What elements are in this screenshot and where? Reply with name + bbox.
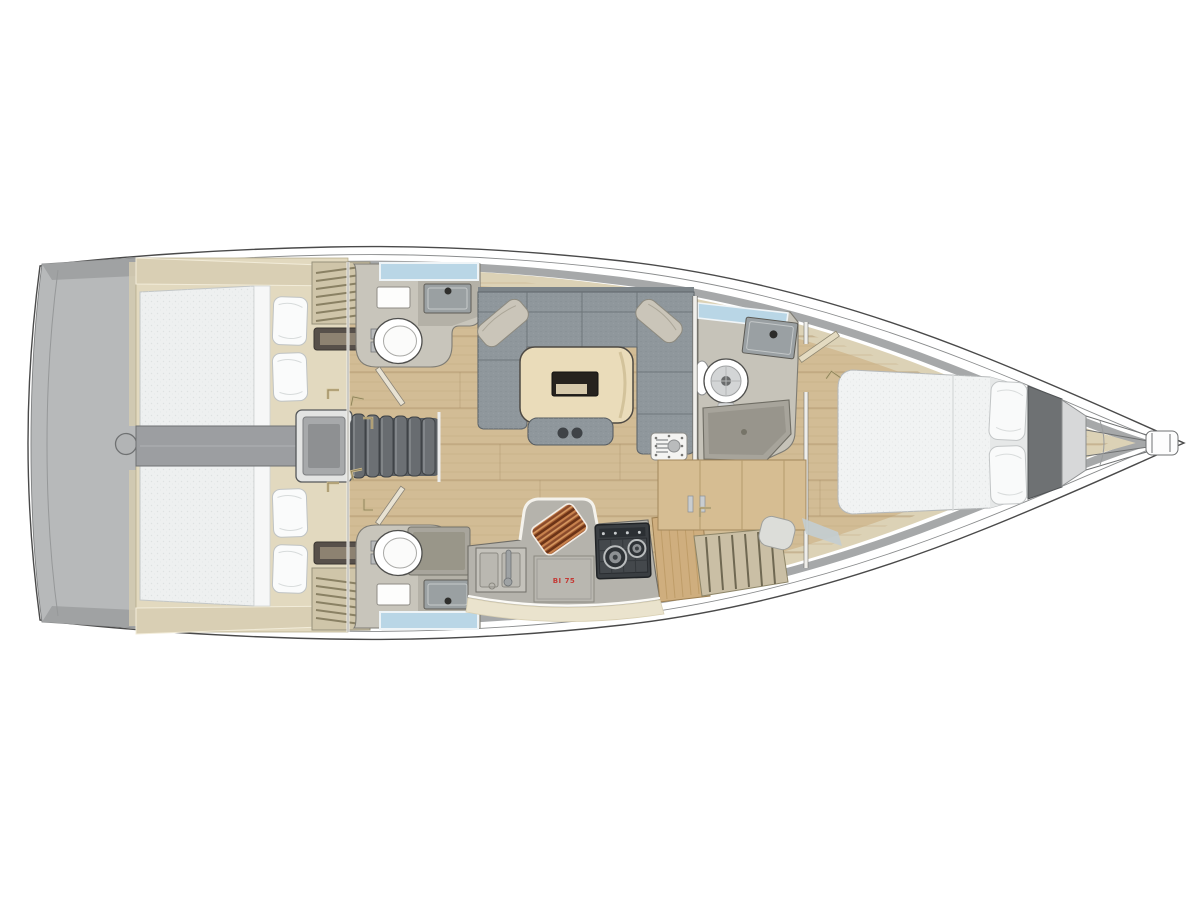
faucet xyxy=(445,598,452,605)
engine-box-core xyxy=(308,424,340,468)
pillow xyxy=(272,352,308,401)
sink xyxy=(742,317,798,359)
transom-trim-lower xyxy=(129,470,136,626)
vent-inner xyxy=(320,547,360,559)
bed-mattress-texture xyxy=(140,286,254,434)
transom-trim-upper xyxy=(129,262,136,426)
cabinet-handle xyxy=(688,496,693,512)
yacht-floorplan-canvas: BI 75 xyxy=(0,0,1200,900)
bed-mattress-texture xyxy=(140,458,254,606)
mirror xyxy=(377,584,410,605)
pillow xyxy=(989,381,1028,441)
pillow xyxy=(272,544,308,593)
mirror xyxy=(377,287,410,308)
window xyxy=(380,263,478,280)
anchor-locker xyxy=(1028,386,1062,499)
table-recess-inner xyxy=(556,384,587,394)
faucet xyxy=(506,550,511,580)
salon-bench xyxy=(528,418,613,445)
companionway-stairs xyxy=(350,414,440,478)
bed-edge-strip xyxy=(254,463,270,606)
pillow xyxy=(272,296,308,345)
stove xyxy=(595,523,651,579)
floorplan-svg: BI 75 xyxy=(0,0,1200,900)
pillow xyxy=(272,488,308,537)
fridge-panel: BI 75 xyxy=(534,556,594,602)
faucet xyxy=(445,288,452,295)
mast-step-plate xyxy=(651,433,687,460)
swim-platform xyxy=(31,258,137,628)
galley-panel-label: BI 75 xyxy=(553,577,576,585)
transom-hatch xyxy=(116,434,137,455)
dining-table xyxy=(520,347,633,423)
pillow xyxy=(989,445,1027,504)
galley-sink xyxy=(476,548,526,592)
window xyxy=(380,612,478,629)
vent-inner xyxy=(320,333,360,345)
bed-edge-strip xyxy=(254,286,270,430)
forward-cabin xyxy=(838,370,1028,514)
